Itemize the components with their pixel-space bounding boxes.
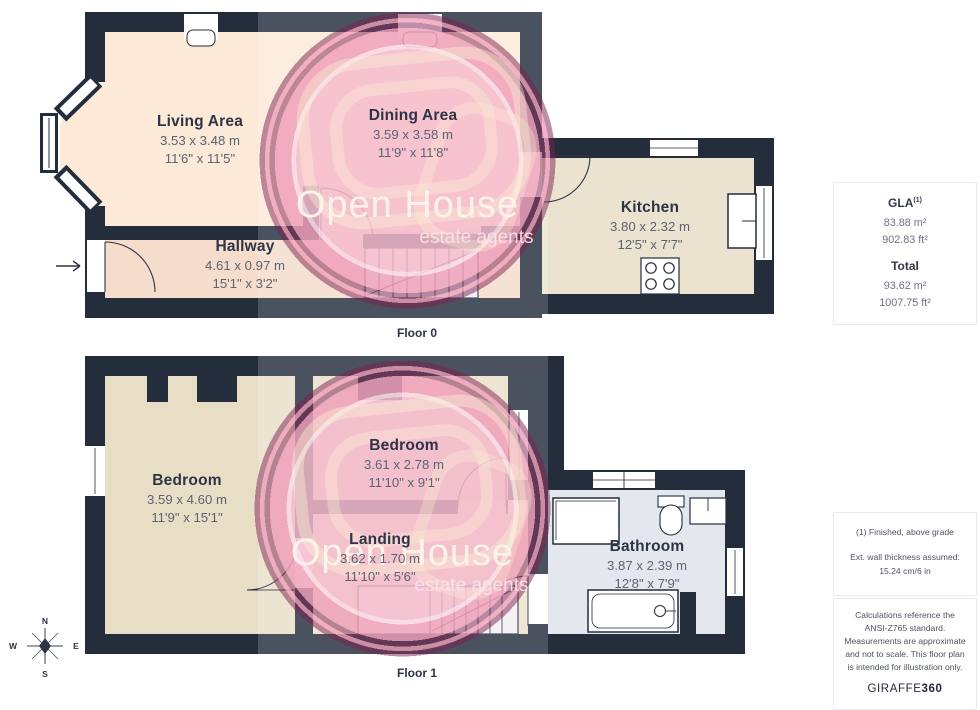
wall-pier	[680, 592, 696, 634]
total-ft2: 1007.75 ft²	[840, 295, 970, 312]
total-m2: 93.62 m²	[840, 278, 970, 295]
footnote-grade: (1) Finished, above grade	[843, 526, 967, 539]
footnote-wall-thickness: Ext. wall thickness assumed: 15.24 cm/6 …	[843, 551, 967, 578]
footnotes-card: (1) Finished, above grade Ext. wall thic…	[833, 512, 977, 596]
floor0-entrance-arrow-icon	[56, 261, 80, 271]
gla-m2: 83.88 m²	[840, 215, 970, 232]
privacy-band	[258, 0, 548, 693]
shower	[553, 498, 619, 544]
toilet-bowl	[660, 505, 682, 535]
compass-north-label: N	[42, 616, 48, 626]
area-summary-card: GLA(1) 83.88 m² 902.83 ft² Total 93.62 m…	[833, 182, 977, 325]
compass-south-label: S	[42, 669, 48, 679]
compass-east-label: E	[73, 641, 79, 651]
floor0-label: Floor 0	[397, 326, 437, 340]
bathtub	[588, 590, 678, 632]
compass-west-label: W	[9, 641, 17, 651]
gla-ft2: 902.83 ft²	[840, 232, 970, 249]
kitchen-hob	[641, 258, 679, 294]
giraffe360-logo: GIRAFFE360	[843, 681, 967, 698]
floor1-label: Floor 1	[397, 666, 437, 680]
disclaimer-text: Calculations reference the ANSI-Z765 sta…	[843, 609, 967, 673]
compass-icon	[27, 628, 63, 664]
gla-heading: GLA(1)	[840, 196, 970, 210]
total-heading: Total	[840, 259, 970, 273]
